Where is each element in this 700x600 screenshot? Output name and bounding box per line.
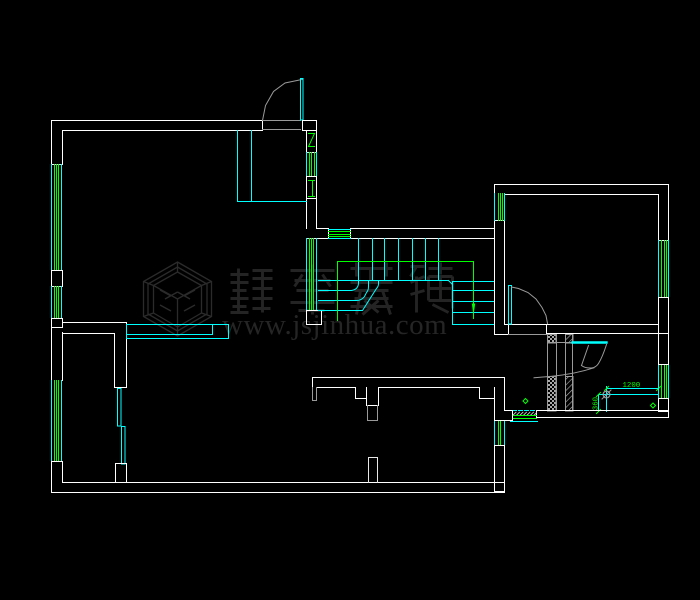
svg-text:www.jsjinhua.com: www.jsjinhua.com [222, 309, 447, 341]
svg-text:360: 360 [593, 397, 601, 410]
svg-text:1200: 1200 [623, 382, 641, 390]
